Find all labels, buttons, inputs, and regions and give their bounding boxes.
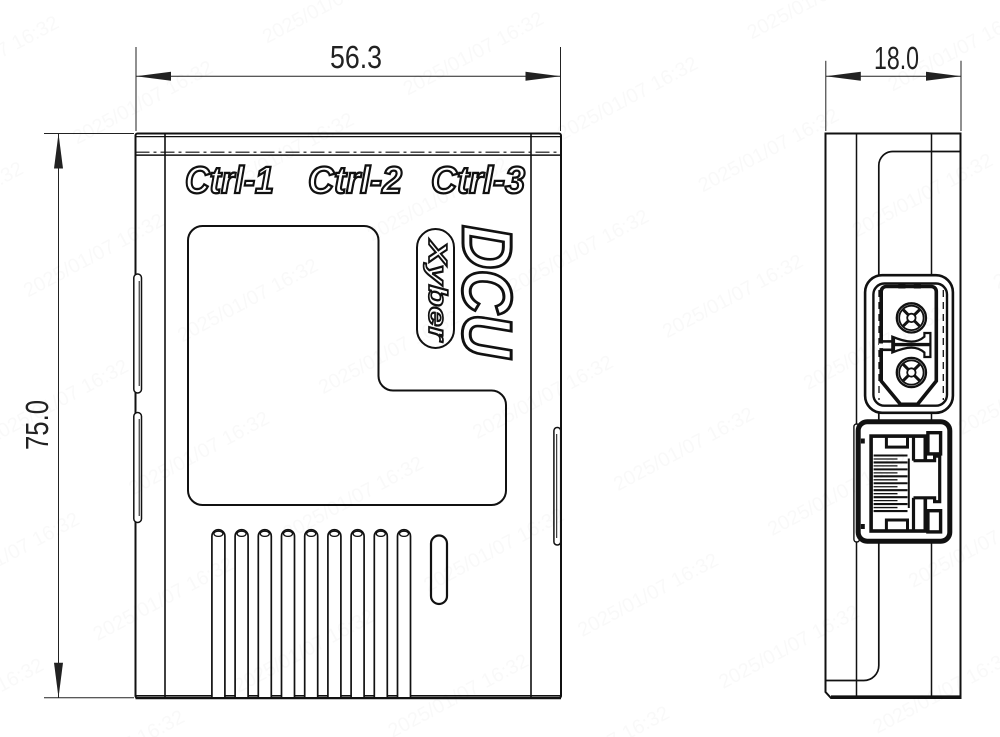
svg-text:2025/01/07 16:32: 2025/01/07 16:32 — [400, 8, 548, 101]
svg-text:2025/01/07 16:32: 2025/01/07 16:32 — [315, 306, 463, 399]
svg-text:2025/01/07 16:32: 2025/01/07 16:32 — [469, 351, 617, 444]
svg-text:56.3: 56.3 — [330, 39, 382, 75]
svg-text:2025/01/07 16:32: 2025/01/07 16:32 — [849, 149, 997, 242]
svg-text:2025/01/07 16:32: 2025/01/07 16:32 — [610, 403, 758, 496]
svg-text:2025/01/07 16:32: 2025/01/07 16:32 — [659, 250, 807, 343]
svg-text:2025/01/07 16:32: 2025/01/07 16:32 — [0, 158, 27, 251]
svg-text:2025/01/07 16:32: 2025/01/07 16:32 — [0, 12, 63, 105]
svg-text:2025/01/07 16:32: 2025/01/07 16:32 — [990, 201, 1000, 294]
svg-text:2025/01/07 16:32: 2025/01/07 16:32 — [125, 407, 273, 500]
svg-text:2025/01/07 16:32: 2025/01/07 16:32 — [105, 0, 253, 3]
svg-text:2025/01/07 16:32: 2025/01/07 16:32 — [20, 210, 168, 303]
svg-text:2025/01/07 16:32: 2025/01/07 16:32 — [41, 706, 189, 737]
svg-text:2025/01/07 16:32: 2025/01/07 16:32 — [554, 53, 702, 146]
svg-text:2025/01/07 16:32: 2025/01/07 16:32 — [420, 504, 568, 597]
svg-text:2025/01/07 16:32: 2025/01/07 16:32 — [695, 105, 843, 198]
svg-text:2025/01/07 16:32: 2025/01/07 16:32 — [525, 702, 673, 737]
svg-text:2025/01/07 16:32: 2025/01/07 16:32 — [69, 57, 217, 150]
svg-text:2025/01/07 16:32: 2025/01/07 16:32 — [744, 0, 892, 44]
svg-text:2025/01/07 16:32: 2025/01/07 16:32 — [0, 654, 47, 737]
svg-text:2025/01/07 16:32: 2025/01/07 16:32 — [174, 254, 322, 347]
svg-text:2025/01/07 16:32: 2025/01/07 16:32 — [505, 205, 653, 298]
svg-text:2025/01/07 16:32: 2025/01/07 16:32 — [869, 646, 1000, 737]
svg-text:Ctrl-2: Ctrl-2 — [308, 160, 402, 202]
svg-text:2025/01/07 16:32: 2025/01/07 16:32 — [0, 508, 83, 601]
svg-text:2025/01/07 16:32: 2025/01/07 16:32 — [574, 549, 722, 642]
